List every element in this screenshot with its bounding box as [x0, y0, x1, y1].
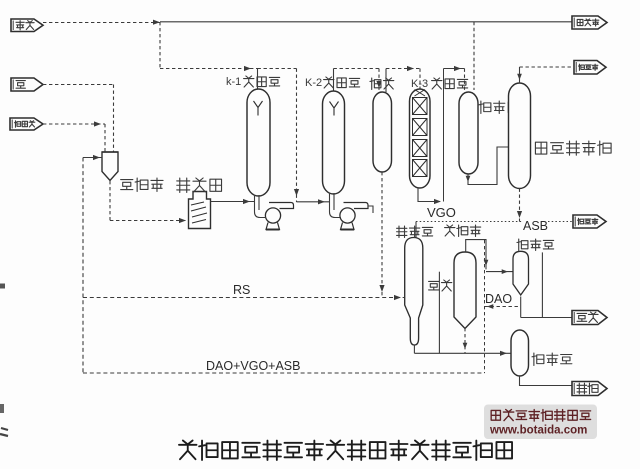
svg-text:RS: RS	[233, 283, 250, 297]
svg-text:ASB: ASB	[523, 219, 548, 233]
svg-text:DAO: DAO	[485, 292, 512, 306]
svg-text:k-1: k-1	[226, 76, 241, 88]
svg-text:K-3: K-3	[411, 78, 428, 90]
svg-text:DAO+VGO+ASB: DAO+VGO+ASB	[206, 359, 300, 373]
svg-text:www.botaida.com: www.botaida.com	[489, 425, 587, 437]
svg-text:VGO: VGO	[427, 205, 456, 220]
svg-text:K-2: K-2	[305, 77, 322, 89]
